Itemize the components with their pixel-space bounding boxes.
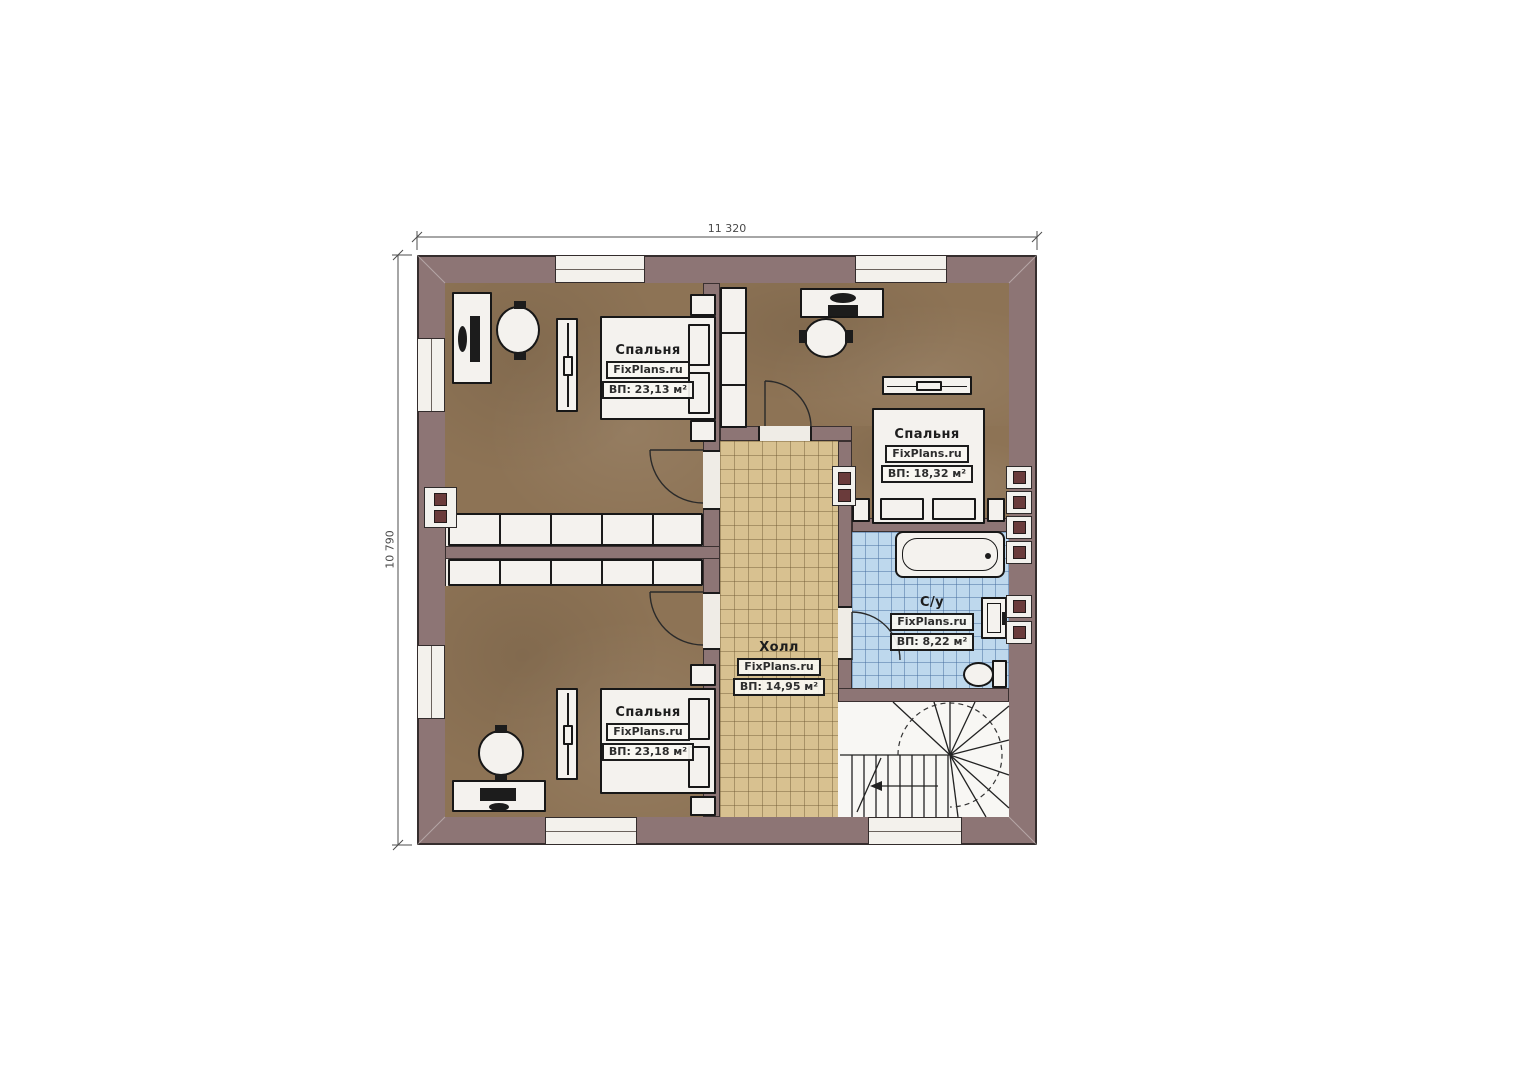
- vent-flue-icon: [1013, 521, 1026, 534]
- window-left-1: [417, 338, 445, 412]
- window-bottom-2: [868, 817, 962, 845]
- office-chair: [478, 730, 524, 776]
- toilet-bowl: [963, 662, 994, 687]
- vent-flue-icon: [1013, 626, 1026, 639]
- computer-icon: [470, 316, 480, 362]
- closet-column: [720, 287, 747, 428]
- vent-flue-icon: [434, 510, 447, 523]
- computer-icon: [830, 293, 856, 303]
- bathtub-drain: [985, 553, 991, 559]
- computer-icon: [458, 326, 467, 352]
- chair-armrest: [514, 301, 526, 309]
- room-label-bedroom-top-left: Спальня FixPlans.ru ВП: 23,13 м²: [573, 344, 723, 399]
- room-name: С/у: [877, 596, 987, 610]
- nightstand: [690, 796, 716, 816]
- watermark: FixPlans.ru: [737, 658, 820, 676]
- vent-block-right-wall: [1006, 541, 1032, 564]
- wall-bath-stairs: [838, 688, 1009, 702]
- chair-armrest: [845, 330, 853, 343]
- chair-armrest: [514, 352, 526, 360]
- nightstand: [690, 420, 716, 442]
- room-name: Холл: [714, 641, 844, 655]
- chair-armrest: [495, 725, 507, 733]
- computer-icon: [480, 788, 516, 801]
- vent-flue-icon: [1013, 600, 1026, 613]
- computer-icon: [828, 305, 858, 316]
- wardrobe-handle: [563, 725, 573, 745]
- vent-block-right-wall: [1006, 466, 1032, 489]
- room-label-hall: Холл FixPlans.ru ВП: 14,95 м²: [714, 641, 844, 696]
- door-opening-bedroom-right: [758, 426, 812, 441]
- room-area: ВП: 14,95 м²: [733, 678, 825, 696]
- chair-armrest: [799, 330, 807, 343]
- desk: [452, 292, 492, 384]
- bathtub-inner: [902, 538, 998, 571]
- room-name: Спальня: [573, 344, 723, 358]
- nightstand: [690, 664, 716, 686]
- room-area: ВП: 23,13 м²: [602, 381, 694, 399]
- window-top-2: [855, 255, 947, 283]
- watermark: FixPlans.ru: [606, 723, 689, 741]
- office-chair: [804, 318, 848, 358]
- vent-flue-icon: [434, 493, 447, 506]
- room-label-bathroom: С/у FixPlans.ru ВП: 8,22 м²: [877, 596, 987, 651]
- vent-block-right-wall: [1006, 595, 1032, 618]
- room-label-bedroom-right: Спальня FixPlans.ru ВП: 18,32 м²: [862, 428, 992, 483]
- vent-flue-icon: [1013, 496, 1026, 509]
- room-area: ВП: 18,32 м²: [881, 465, 973, 483]
- window-bottom-1: [545, 817, 637, 845]
- room-label-bedroom-bottom-left: Спальня FixPlans.ru ВП: 23,18 м²: [573, 706, 723, 761]
- vent-block-right-wall: [1006, 491, 1032, 514]
- pillow: [932, 498, 976, 520]
- wardrobe-row-top: [448, 513, 703, 546]
- sink-basin: [987, 603, 1001, 633]
- wardrobe-row-bottom: [448, 559, 703, 586]
- vent-block-right-wall: [1006, 621, 1032, 644]
- bathtub: [895, 531, 1005, 578]
- toilet-tank: [992, 660, 1007, 688]
- dimension-height-label: 10 790: [384, 515, 397, 585]
- door-opening-bedroom-top-left: [703, 450, 720, 510]
- wall-between-left-bedrooms: [445, 546, 720, 559]
- floor-stairs: [838, 702, 1009, 817]
- vent-flue-icon: [1013, 546, 1026, 559]
- wardrobe-handle: [563, 356, 573, 376]
- room-name: Спальня: [573, 706, 723, 720]
- vent-block-hall-wall: [832, 466, 856, 506]
- dimension-width-label: 11 320: [677, 222, 777, 235]
- dresser-handle: [916, 381, 942, 391]
- window-top-1: [555, 255, 645, 283]
- vent-flue-icon: [838, 472, 851, 485]
- room-name: Спальня: [862, 428, 992, 442]
- watermark: FixPlans.ru: [885, 445, 968, 463]
- room-area: ВП: 8,22 м²: [890, 633, 975, 651]
- vent-block-left-wall: [424, 487, 457, 528]
- window-left-2: [417, 645, 445, 719]
- computer-icon: [489, 803, 509, 811]
- vent-flue-icon: [838, 489, 851, 502]
- desk: [800, 288, 884, 318]
- floor-hall: [720, 441, 838, 817]
- watermark: FixPlans.ru: [890, 613, 973, 631]
- nightstand: [690, 294, 716, 316]
- pillow: [880, 498, 924, 520]
- dresser: [882, 376, 972, 395]
- watermark: FixPlans.ru: [606, 361, 689, 379]
- room-area: ВП: 23,18 м²: [602, 743, 694, 761]
- office-chair: [496, 306, 540, 354]
- desk: [452, 780, 546, 812]
- vent-flue-icon: [1013, 471, 1026, 484]
- nightstand: [987, 498, 1005, 522]
- vent-block-right-wall: [1006, 516, 1032, 539]
